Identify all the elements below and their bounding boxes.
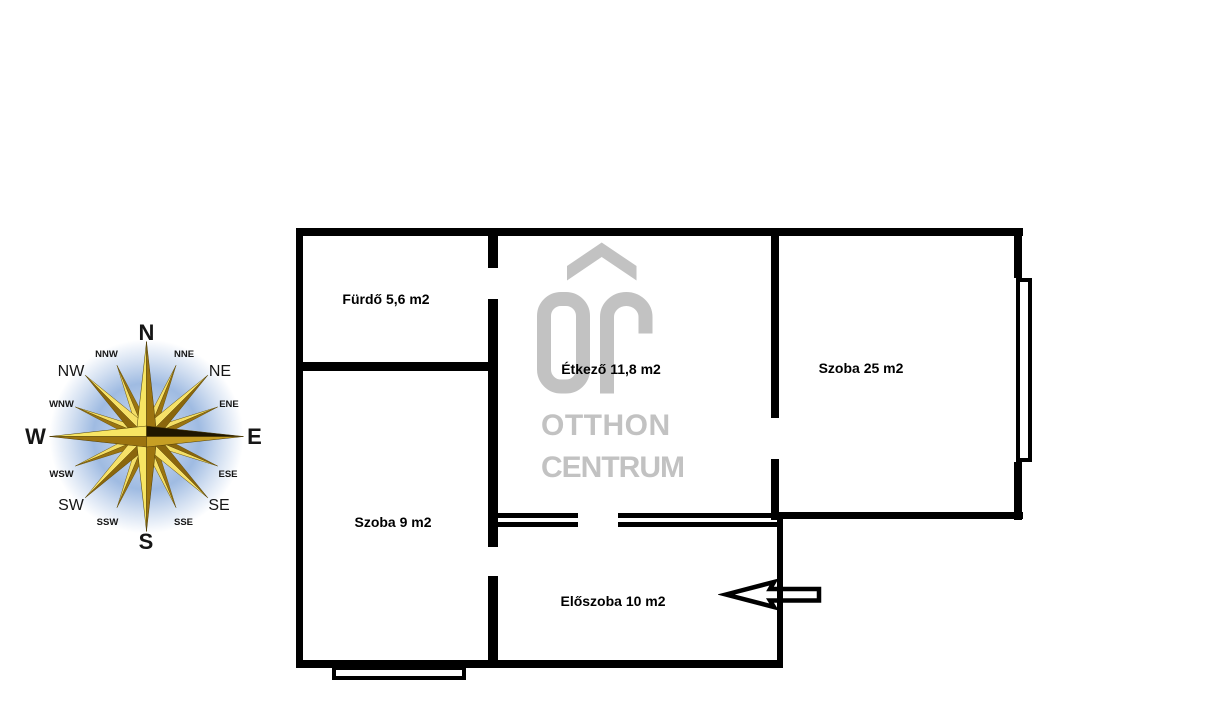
roof-chevron-icon	[567, 243, 637, 281]
wall-left	[296, 228, 303, 668]
window-south-icon	[332, 666, 466, 680]
compass-label-se: SE	[208, 497, 229, 514]
compass-label-w: W	[25, 424, 46, 449]
wall-etkezo-szoba25-upper	[771, 228, 779, 418]
compass-label-sw: SW	[58, 497, 85, 514]
compass-label-ne: NE	[209, 363, 231, 380]
compass-label-n: N	[139, 320, 155, 345]
room-label-etkezo: Étkező 11,8 m2	[561, 361, 661, 377]
wall-eloszoba-top-a2	[618, 513, 778, 518]
compass-label-nnw: NNW	[95, 349, 118, 360]
wall-etkezo-szoba25-lower	[771, 459, 779, 520]
compass-label-e: E	[247, 424, 262, 449]
floor-plan-page: OTTHON CENTRUM Fürdő 5,6 m2 Étkező 11,8 …	[0, 0, 1206, 723]
room-label-szoba25: Szoba 25 m2	[819, 360, 904, 376]
compass-label-wsw: WSW	[49, 469, 73, 480]
room-label-eloszoba: Előszoba 10 m2	[560, 593, 665, 609]
room-label-szoba9: Szoba 9 m2	[354, 514, 431, 530]
wall-szoba25-bottom	[778, 512, 1023, 519]
compass-label-nne: NNE	[174, 349, 194, 360]
wall-eloszoba-right	[777, 519, 783, 667]
compass-label-wnw: WNW	[49, 399, 74, 410]
compass-label-sse: SSE	[174, 517, 193, 528]
compass-label-ene: ENE	[219, 399, 239, 410]
window-east-icon	[1016, 278, 1032, 462]
wall-eloszoba-top-a1	[490, 513, 578, 518]
wall-eloszoba-top-b2	[618, 522, 783, 527]
wall-middle-lower	[488, 576, 498, 666]
wall-right-upper	[1014, 228, 1022, 278]
wall-top	[296, 228, 1023, 236]
compass-label-nw: NW	[58, 363, 86, 380]
compass-rose: N S W E NE NW SW SE NNW NNE WNW ENE WSW …	[10, 315, 275, 560]
entrance-arrow-icon	[718, 576, 824, 613]
compass-label-ssw: SSW	[97, 517, 119, 528]
wall-furdo-szoba9	[296, 362, 492, 371]
monogram-letter-c	[607, 299, 646, 394]
wall-middle-upper	[488, 228, 498, 268]
watermark-brand-line1: OTTHON	[541, 411, 671, 441]
room-label-furdo: Fürdő 5,6 m2	[342, 291, 429, 307]
compass-label-s: S	[139, 529, 154, 554]
wall-eloszoba-top-b1	[490, 522, 578, 527]
compass-label-ese: ESE	[218, 469, 237, 480]
watermark-brand-line2: CENTRUM	[541, 453, 684, 483]
wall-middle-center	[488, 299, 498, 547]
